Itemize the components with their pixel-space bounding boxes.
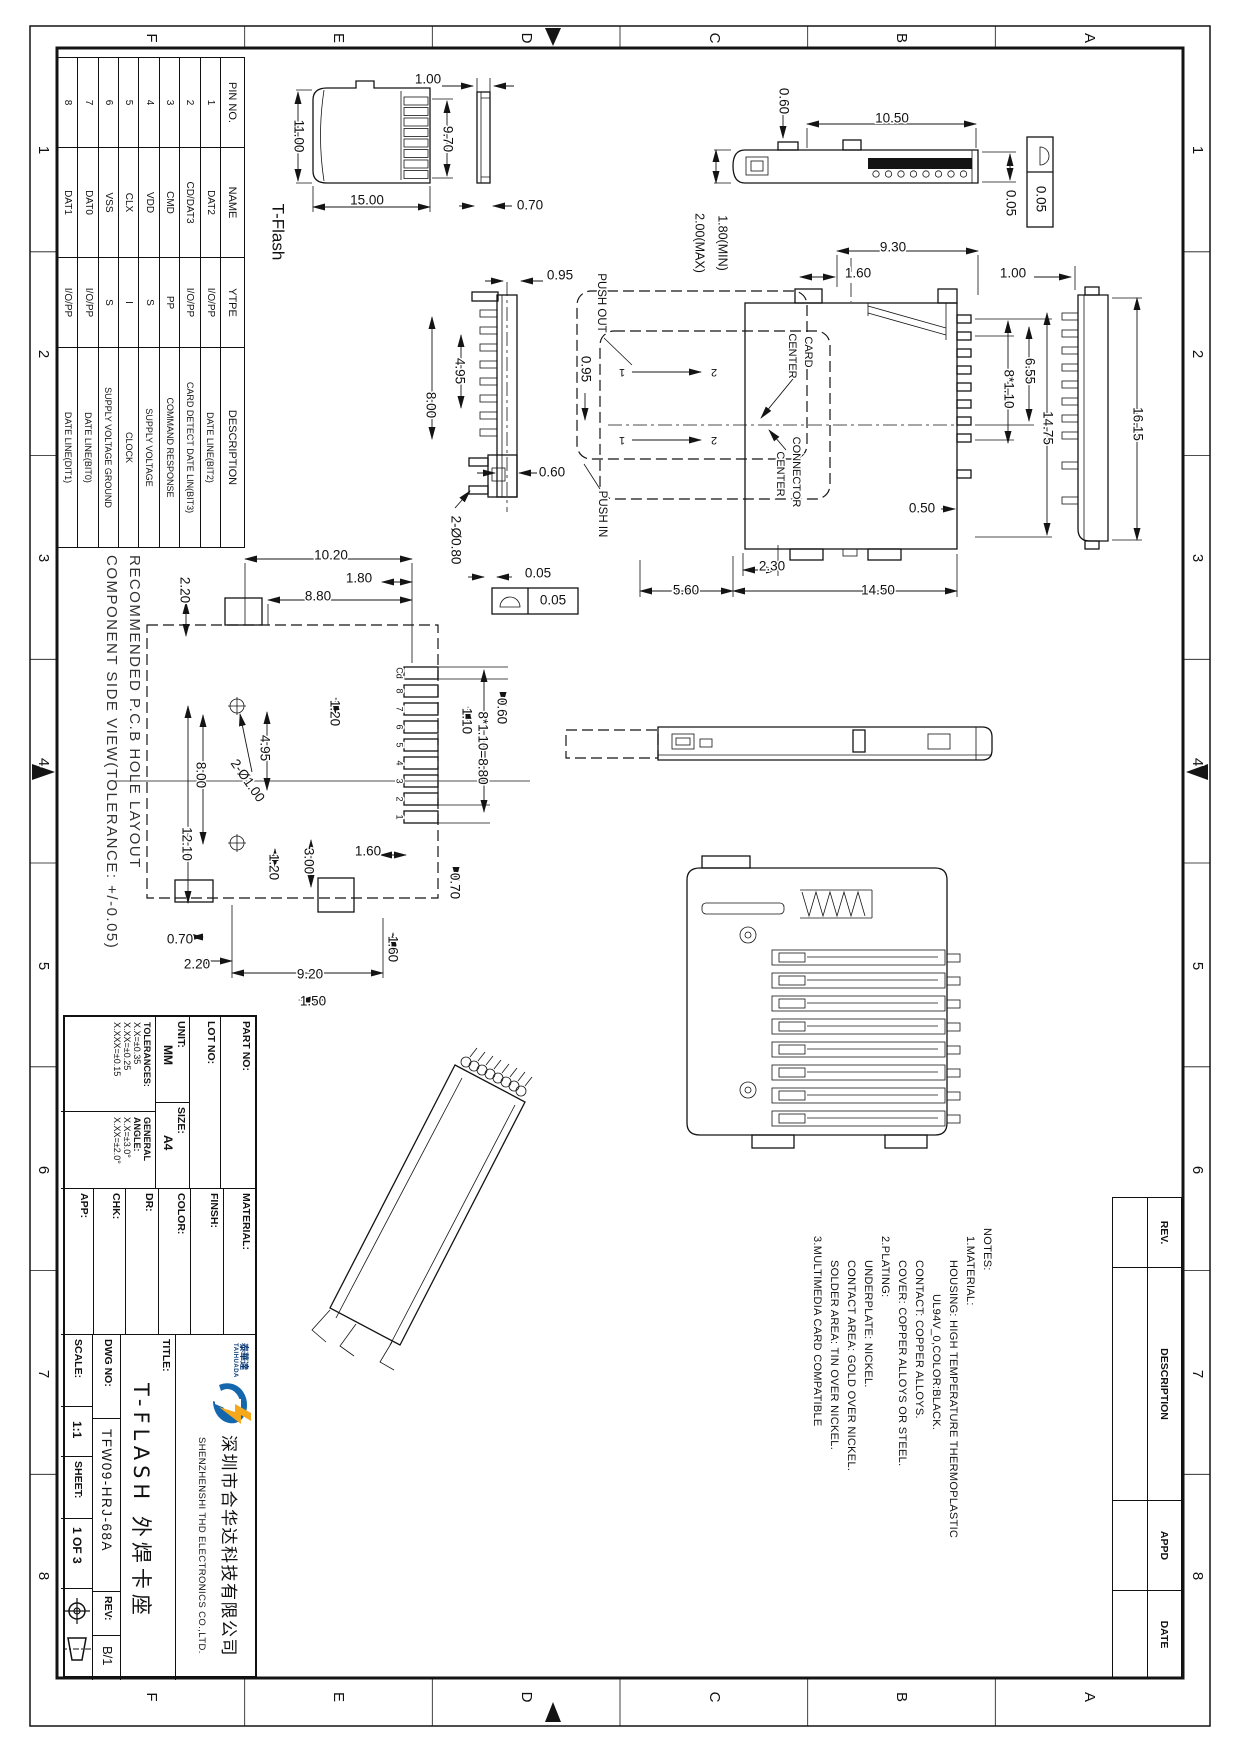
dim-label: CENTER — [774, 451, 786, 496]
rev-table-header: APPD — [1148, 1501, 1182, 1591]
dim-label: 2-Ø0.80 — [448, 516, 463, 565]
pin-cell: DAT2 — [200, 148, 220, 258]
dim-label: 1 — [619, 434, 625, 446]
grid-label: 3 — [35, 554, 52, 562]
pin-cell: 5 — [119, 58, 139, 148]
pin-table-header: DESCRIPTION — [221, 348, 245, 548]
datum-target-icon — [63, 1597, 91, 1625]
grid-label: F — [143, 33, 160, 42]
rev-label-cell: REV: — [92, 1592, 120, 1636]
dim-label: 0.50 — [909, 501, 935, 516]
dim-label: 8.80 — [305, 589, 331, 604]
dim-label: 1.10 — [459, 708, 474, 734]
pad-label: 2 — [395, 796, 405, 801]
color-cell: COLOR: — [158, 1189, 190, 1335]
dim-label: 8*1.10=8.80 — [475, 711, 490, 784]
pin-cell: I — [119, 258, 139, 348]
material-cell: MATERIAL: — [223, 1189, 255, 1335]
sheet-label-cell: SHEET: — [61, 1457, 92, 1519]
dwg-no-label-cell: DWG NO: — [92, 1335, 120, 1419]
dim-label: 0.95 — [547, 268, 573, 283]
dim-label: 0.70 — [517, 198, 543, 213]
view-front — [577, 251, 1075, 597]
dim-label: 2-Ø1.00 — [228, 756, 268, 805]
pin-table: PIN NO. NAME YTPE DESCRIPTION 1 DAT2 I/O… — [57, 57, 245, 547]
view-top-profile — [714, 112, 1053, 227]
pin-table-header: PIN NO. — [221, 58, 245, 148]
company-logo-icon — [203, 1377, 253, 1429]
dim-label: 2 — [711, 366, 717, 378]
dim-label: 1.20 — [327, 700, 342, 726]
dim-label: CENTER — [786, 333, 798, 378]
grid-label: E — [330, 1692, 347, 1702]
rev-table-cell — [1113, 1591, 1148, 1679]
note-line: CONTACT: COPPER ALLOYS. — [910, 1228, 927, 1528]
grid-label: B — [893, 33, 910, 43]
dim-label: 4.95 — [257, 735, 272, 761]
scale-label: SCALE: — [72, 1339, 84, 1378]
pin-cell: DATE LINE(BIT2) — [200, 348, 220, 548]
dim-label: 9.20 — [297, 967, 323, 982]
pad-label: 8 — [395, 688, 405, 693]
part-no-cell: PART NO: — [220, 1017, 255, 1189]
size-value: A4 — [161, 1135, 175, 1150]
dim-label: 0.95 — [578, 356, 593, 382]
dim-label: 9.70 — [440, 126, 455, 152]
grid-label: E — [330, 33, 347, 43]
angle-label: GENERAL — [142, 1117, 152, 1188]
pin-cell: S — [139, 258, 159, 348]
pin-row: 4 VDD S SUPPLY VOLTAGE — [139, 58, 159, 548]
finish-label: FINSH: — [208, 1193, 220, 1228]
note-line: NOTES: — [978, 1228, 995, 1528]
title-block: PART NO: LOT NO: UNIT: MM SIZE: A4 TOLER… — [63, 1015, 257, 1678]
dim-label: 2.20 — [177, 577, 192, 603]
pin-row: 8 DAT1 I/O/PP DATE LINE(DIT1) — [58, 58, 78, 548]
material-label: MATERIAL: — [240, 1193, 252, 1250]
dim-label: 1.60 — [845, 266, 871, 281]
flatness-frame-rotated — [1027, 137, 1053, 227]
logo-en-text: TAIHUADA — [232, 1343, 238, 1377]
pcb-layout-note: RECOMMENDED P.C.B HOLE LAYOUT COMPONENT … — [98, 555, 146, 955]
pin-row: 6 VSS S SUPPLY VOLTAGE GROUND — [98, 58, 118, 548]
chk-label: CHK: — [110, 1193, 122, 1219]
dim-label: 4.95 — [452, 358, 467, 384]
dim-label: 1.60 — [385, 936, 400, 962]
dim-label: 0.05 — [1033, 186, 1048, 212]
company-name-cn: 深圳市合华达科技有限公司 — [218, 1435, 243, 1657]
dim-label: 1.00 — [415, 72, 441, 87]
dwg-no-label: DWG NO: — [102, 1339, 114, 1387]
title-cell: TITLE: T-FLASH 外焊卡座 — [120, 1335, 175, 1680]
rev-cell: B/1 — [92, 1636, 120, 1680]
sheet-value: 1 OF 3 — [70, 1527, 84, 1564]
tolerance-value: X.XX=±0.25 — [122, 1022, 132, 1111]
pin-cell: VSS — [98, 148, 118, 258]
rev-table-header: DATE — [1148, 1591, 1182, 1679]
pin-cell: I/O/PP — [180, 258, 200, 348]
size-label: SIZE: — [175, 1107, 187, 1134]
pin-cell: DAT1 — [58, 148, 78, 258]
pin-cell: CARD DETECT DATE LIN(BIT3) — [180, 348, 200, 548]
pin-cell: I/O/PP — [78, 258, 98, 348]
dim-label: 11.00 — [291, 120, 306, 153]
grid-label: 1 — [35, 146, 52, 154]
pad-label: 5 — [395, 742, 405, 747]
dim-label: 0.70 — [447, 873, 462, 899]
grid-label: 7 — [1189, 1370, 1206, 1378]
pin-cell: 7 — [78, 58, 98, 148]
dim-label: 0.60 — [539, 465, 565, 480]
pin-row: 3 CMD PP COMMAND RESPONSE — [159, 58, 179, 548]
company-cell: 泰華達 TAIHUADA 深圳市合华达科技有限公司 SHENZHENSHI TH… — [175, 1335, 255, 1680]
dim-label: PUSH OUT — [595, 273, 607, 332]
tolerance-value: X.X=±0.35 — [132, 1022, 142, 1111]
angle-value: X.XX=±2.0° — [112, 1117, 122, 1188]
pin-cell: 4 — [139, 58, 159, 148]
dim-label: 0.05 — [1003, 190, 1018, 216]
pin-cell: 8 — [58, 58, 78, 148]
logo-cn-text: 泰華達 — [238, 1343, 251, 1377]
grid-label: 7 — [35, 1370, 52, 1378]
pin-row: 2 CD/DAT3 I/O/PP CARD DETECT DATE LIN(BI… — [180, 58, 200, 548]
tolerances-label: TOLERANCES: — [142, 1022, 152, 1111]
rev-value: B/1 — [100, 1646, 115, 1666]
unit-label: UNIT: — [175, 1021, 187, 1048]
pin-cell: I/O/PP — [58, 258, 78, 348]
title-label: TITLE: — [160, 1339, 172, 1372]
grid-label: B — [893, 1692, 910, 1702]
angle-cell: GENERAL ANGLE: X.X=±3.0° X.XX=±2.0° — [61, 1112, 155, 1189]
rev-table-cell — [1113, 1198, 1148, 1268]
rev-table-cell — [1113, 1501, 1148, 1591]
view-thin-profile — [566, 727, 992, 760]
dim-label: 2.20 — [184, 957, 210, 972]
dim-label: 1.80 — [346, 571, 372, 586]
revision-table: REV. DESCRIPTION APPD DATE — [1113, 1197, 1182, 1678]
dim-label: 8.00 — [423, 392, 438, 418]
pin-row: 1 DAT2 I/O/PP DATE LINE(BIT2) — [200, 58, 220, 548]
app-label: APP: — [78, 1193, 90, 1218]
dwg-no-value: TFW09-HRJ-68A — [99, 1429, 114, 1552]
pin-cell: CD/DAT3 — [180, 148, 200, 258]
note-line: 1.MATERIAL: — [961, 1228, 978, 1528]
pin-cell: 1 — [200, 58, 220, 148]
note-line: HOUSING: HIGH TEMPERATURE THERMOPLASTIC — [944, 1228, 961, 1528]
dim-label: 1.00 — [1000, 266, 1026, 281]
pin-cell: S — [98, 258, 118, 348]
dim-label: 0.05 — [525, 566, 551, 581]
pin-cell: SUPPLY VOLTAGE GROUND — [98, 348, 118, 548]
pin-cell: COMMAND RESPONSE — [159, 348, 179, 548]
pin-cell: DATE LINE(BIT0) — [78, 348, 98, 548]
logo-block: 泰華達 TAIHUADA — [232, 1343, 251, 1377]
note-line: COVER: COPPER ALLOYS OR STEEL. — [893, 1228, 910, 1528]
dim-label: T-Flash — [269, 204, 288, 261]
note-line: CONTACT AREA: GOLD OVER NICKEL. — [842, 1228, 859, 1528]
app-cell: APP: — [61, 1189, 93, 1335]
grid-label: 3 — [1189, 554, 1206, 562]
pcb-note-line1: RECOMMENDED P.C.B HOLE LAYOUT — [123, 555, 146, 955]
dim-label: 12.10 — [179, 827, 194, 861]
pin-cell: SUPPLY VOLTAGE — [139, 348, 159, 548]
pad-label: 1 — [395, 814, 405, 819]
grid-label: C — [706, 33, 723, 44]
chk-cell: CHK: — [93, 1189, 125, 1335]
scale-value: 1:1 — [70, 1421, 84, 1438]
dim-label: 16.15 — [1130, 407, 1145, 441]
dim-label: PUSH IN — [596, 491, 608, 538]
part-no-label: PART NO: — [240, 1021, 252, 1071]
grid-label: 6 — [1189, 1166, 1206, 1174]
grid-label: 4 — [35, 758, 52, 766]
dim-label: 1.50 — [300, 994, 326, 1009]
dim-label: 14.50 — [861, 583, 895, 598]
pin-table-header: YTPE — [221, 258, 245, 348]
sheet-label: SHEET: — [72, 1461, 84, 1498]
dim-label: 10.50 — [875, 111, 909, 126]
dim-label: 8*1.10 — [1001, 369, 1016, 408]
dim-label: 0.60 — [776, 88, 791, 114]
view-right-side — [1062, 287, 1142, 549]
lot-no-label: LOT NO: — [205, 1021, 217, 1064]
pin-cell: 2 — [180, 58, 200, 148]
pcb-note-line2: COMPONENT SIDE VIEW(TOLERANCE: +/-0.05) — [100, 555, 123, 955]
tolerances-cell: TOLERANCES: X.X=±0.35 X.XX=±0.25 X.XXX=±… — [61, 1017, 155, 1112]
projection-angle-icon — [63, 1633, 91, 1665]
view-tflash-card — [296, 78, 514, 212]
dim-label: 5.60 — [673, 583, 699, 598]
tolerance-value: X.XXX=±0.15 — [112, 1022, 122, 1111]
notes-block: NOTES: 1.MATERIAL: HOUSING: HIGH TEMPERA… — [795, 1228, 995, 1528]
dim-label: 1 — [619, 366, 625, 378]
color-label: COLOR: — [175, 1193, 187, 1234]
grid-label: 5 — [35, 962, 52, 970]
dim-label: 0.70 — [167, 932, 193, 947]
product-title: T-FLASH 外焊卡座 — [127, 1383, 157, 1620]
unit-cell: UNIT: MM — [155, 1017, 189, 1103]
grid-label: D — [518, 1692, 535, 1703]
view-isometric — [312, 1048, 532, 1370]
dim-label: 10.20 — [314, 548, 348, 563]
dim-label: 9.30 — [880, 240, 906, 255]
projection-cell — [61, 1589, 92, 1680]
note-line: UNDERPLATE: NICKEL. — [859, 1228, 876, 1528]
unit-value: MM — [161, 1045, 175, 1065]
pin-cell: DATE LINE(DIT1) — [58, 348, 78, 548]
note-line: 3.MULTIMEDIA CARD COMPATIBLE — [808, 1228, 825, 1528]
dim-label: 0.05 — [540, 593, 566, 608]
scale-label-cell: SCALE: — [61, 1335, 92, 1407]
pin-cell: CMD — [159, 148, 179, 258]
grid-label: D — [518, 33, 535, 44]
dr-cell: DR: — [125, 1189, 158, 1335]
dim-label: 6.55 — [1022, 358, 1037, 384]
grid-label: 2 — [35, 350, 52, 358]
pin-table-header: NAME — [221, 148, 245, 258]
sheet-cell: 1 OF 3 — [61, 1519, 92, 1589]
pad-label: 4 — [395, 760, 405, 765]
drawing-sheet: .ol{stroke:#141414;stroke-width:1.3;fill… — [0, 0, 1240, 1754]
pad-label: 6 — [395, 724, 405, 729]
rev-table-header: DESCRIPTION — [1148, 1268, 1182, 1501]
grid-label: F — [143, 1692, 160, 1701]
dim-label: 2.00(MAX) — [693, 213, 707, 273]
pad-label: 7 — [395, 706, 405, 711]
rev-table-cell — [1113, 1268, 1148, 1501]
dim-label: 2.30 — [759, 559, 785, 574]
rev-table-header: REV. — [1148, 1198, 1182, 1268]
pin-cell: I/O/PP — [200, 258, 220, 348]
note-line: 2.PLATING: — [876, 1228, 893, 1528]
angle-label: ANGLE: — [132, 1117, 142, 1188]
dim-label: CONNECTOR — [790, 437, 802, 508]
pin-cell: 6 — [98, 58, 118, 148]
dim-label: 8.00 — [193, 762, 208, 788]
dim-label: 1.20 — [266, 854, 281, 880]
dim-label: CARD — [802, 336, 814, 367]
view-open-top — [687, 856, 960, 1148]
pin-cell: CLX — [119, 148, 139, 258]
dim-label: 0.60 — [494, 698, 509, 724]
pin-cell: 3 — [159, 58, 179, 148]
note-line: SOLDER AREA: TIN OVER NICKEL. — [825, 1228, 842, 1528]
pin-cell: PP — [159, 258, 179, 348]
lot-no-cell: LOT NO: — [189, 1017, 220, 1189]
grid-label: 2 — [1189, 350, 1206, 358]
pad-label: 3 — [395, 778, 405, 783]
pin-row: 5 CLX I CLOCK — [119, 58, 139, 548]
company-name-en: SHENZHENSHI THD ELECTRONICS CO.,LTD. — [196, 1437, 207, 1654]
grid-label: 6 — [35, 1166, 52, 1174]
angle-value: X.X=±3.0° — [122, 1117, 132, 1188]
dim-label: 15.00 — [350, 193, 384, 208]
pin-cell: VDD — [139, 148, 159, 258]
grid-label: A — [1081, 1692, 1098, 1702]
dim-label: 1.60 — [355, 844, 381, 859]
rev-label: REV: — [102, 1596, 114, 1621]
dr-label: DR: — [143, 1193, 155, 1212]
finish-cell: FINSH: — [190, 1189, 223, 1335]
dim-label: 1.80(MIN) — [716, 215, 730, 271]
dim-label: 2 — [711, 434, 717, 446]
grid-label: 8 — [1189, 1572, 1206, 1580]
dim-label: 3.00 — [301, 848, 316, 874]
grid-label: A — [1081, 33, 1098, 43]
pin-cell: CLOCK — [119, 348, 139, 548]
pin-cell: DAT0 — [78, 148, 98, 258]
note-line: UL94V_0,COLOR:BLACK. — [927, 1228, 944, 1528]
grid-label: C — [706, 1692, 723, 1703]
grid-label: 5 — [1189, 962, 1206, 970]
pin-row: 7 DAT0 I/O/PP DATE LINE(BIT0) — [78, 58, 98, 548]
dwg-no-cell: TFW09-HRJ-68A — [92, 1419, 120, 1592]
scale-cell: 1:1 — [61, 1407, 92, 1457]
grid-label: 8 — [35, 1572, 52, 1580]
pad-label: Cd — [395, 667, 405, 679]
grid-label: 1 — [1189, 146, 1206, 154]
dim-label: 14.75 — [1040, 411, 1055, 445]
grid-label: 4 — [1189, 758, 1206, 766]
size-cell: SIZE: A4 — [155, 1103, 189, 1189]
